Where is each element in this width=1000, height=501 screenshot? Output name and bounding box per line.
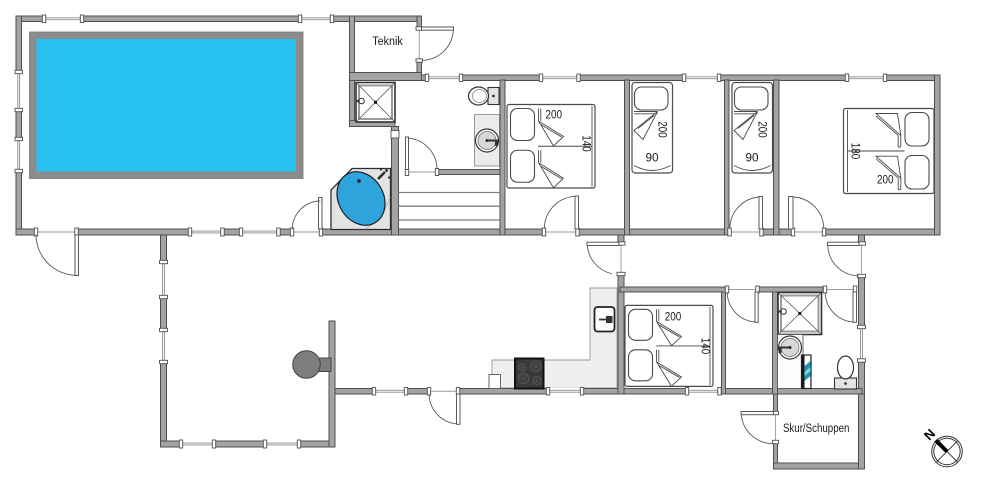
svg-text:200: 200 — [756, 121, 768, 138]
svg-text:180: 180 — [849, 143, 861, 160]
svg-text:140: 140 — [699, 338, 711, 355]
svg-text:200: 200 — [656, 121, 668, 138]
svg-text:200: 200 — [665, 312, 682, 324]
svg-text:Teknik: Teknik — [372, 36, 403, 48]
svg-text:140: 140 — [580, 135, 592, 152]
svg-text:90: 90 — [746, 153, 759, 165]
svg-text:200: 200 — [546, 110, 563, 122]
svg-text:200: 200 — [877, 174, 894, 186]
svg-text:90: 90 — [646, 153, 659, 165]
svg-text:Skur/Schuppen: Skur/Schuppen — [783, 423, 850, 435]
